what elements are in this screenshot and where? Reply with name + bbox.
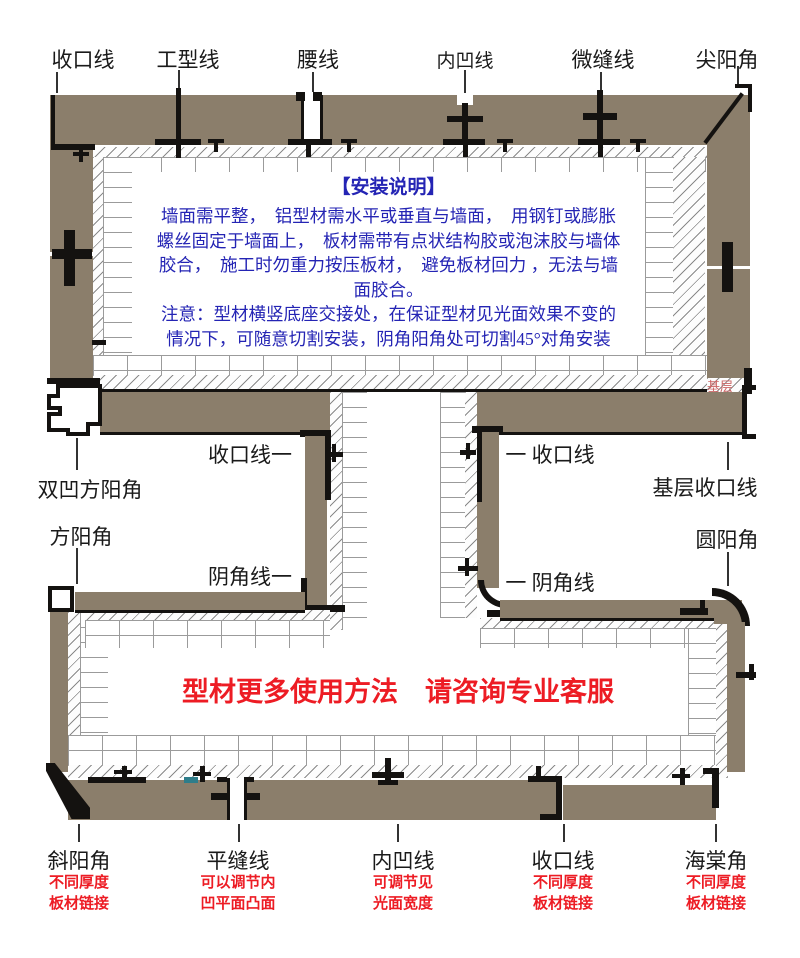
label-shoukouxian-left: 收口线一: [195, 439, 305, 469]
shoukouxian-mid-profile: [325, 430, 331, 500]
install-note-line: 胶合， 施工时勿重力按压板材， 避免板材回力 ，无法与墙: [132, 253, 645, 278]
label-fang-yang-jiao: 方阳角: [26, 521, 136, 551]
wall-brick-bottom: [93, 355, 707, 375]
caption-neiaoxian: 可调节见 光面宽度: [353, 872, 453, 914]
shoukouxian-profile: [51, 144, 95, 150]
left-wall-profile: [52, 249, 92, 259]
wall-hatch-right: [673, 157, 705, 355]
leader-line: [727, 442, 729, 470]
stub-wall-brick-right: [440, 392, 465, 618]
neiaoxian-bottom-profile: [378, 780, 398, 785]
fixing-tick: [636, 139, 640, 152]
label-shoukouxian-bottom: 收口线: [513, 845, 613, 875]
profile-installation-diagram: 收口线 工型线 腰线 内凹线 微缝线 尖阳角: [0, 0, 800, 958]
install-note-line: 面胶合。: [132, 278, 645, 303]
wall-brick-right: [645, 157, 673, 355]
fixing-tick: [536, 766, 541, 778]
leader-line: [312, 72, 314, 92]
install-note: 【安装说明】 墙面需平整， 铝型材需水平或垂直与墙面， 用钢钉或膨胀 螺丝固定于…: [132, 172, 645, 351]
shoukouxian-bottom-profile: [528, 776, 556, 782]
caption-line: 不同厚度: [666, 872, 766, 893]
leader-line: [238, 824, 240, 842]
wall-hatch-bottom: [93, 375, 707, 389]
jiceng-shoukou-profile: [742, 434, 756, 439]
left-arm-panel: [100, 392, 330, 435]
label-yinjiaoxian-left: 阴角线一: [195, 561, 305, 591]
yaoxian-profile: [301, 95, 323, 139]
yaoxian-profile: [296, 92, 305, 101]
fang-yang-jiao-bar: [75, 592, 305, 613]
yuan-yang-jiao-profile: [712, 588, 750, 626]
fang-yang-jiao-profile: [48, 586, 74, 612]
install-note-line: 注意：型材横竖底座交接处，在保证型材见光面效果不变的: [132, 302, 645, 327]
right-wall-panel: [707, 95, 750, 378]
label-yuan-yang-jiao: 圆阳角: [672, 524, 782, 554]
fixing-tick: [92, 340, 106, 345]
bwall-brick-topleft: [85, 620, 330, 648]
label-shuang-ao-fang-yang-jiao: 双凹方阳角: [25, 474, 155, 504]
weifengxian-profile: [583, 113, 617, 120]
install-note-title: 【安装说明】: [132, 172, 645, 199]
caption-haitangjiao: 不同厚度 板材链接: [666, 872, 766, 914]
bwall-brick-bottom: [68, 735, 716, 765]
caption-shoukouxian: 不同厚度 板材链接: [513, 872, 613, 914]
fixing-tick: [347, 139, 351, 152]
fixing-tick: [503, 139, 507, 152]
left-stub-panel: [305, 436, 327, 608]
haitangjiao-profile: [712, 768, 719, 808]
label-shoukouxian-right: 一 收口线: [495, 439, 605, 469]
leader-line: [78, 824, 80, 842]
label-gongxingxian: 工型线: [143, 44, 233, 74]
stub-wall-hatch-left: [330, 392, 342, 630]
fixing-tick: [466, 443, 470, 459]
label-xieyangjiao: 斜阳角: [29, 845, 129, 875]
shoukouxian-bottom-profile: [540, 814, 557, 820]
top-wall-panel: [50, 95, 707, 145]
wall-brick-left: [103, 157, 132, 355]
label-neiaoxian-bottom: 内凹线: [353, 845, 453, 875]
fixing-tick: [306, 145, 311, 157]
bottom-band-left: [68, 780, 558, 820]
fixing-tick: [176, 145, 181, 158]
caption-line: 板材链接: [666, 893, 766, 914]
install-note-line: 螺丝固定于墙面上， 板材需带有点状结构胶或泡沫胶与墙体: [132, 229, 645, 254]
caption-line: 不同厚度: [29, 872, 129, 893]
right-arm-panel: [477, 392, 743, 435]
pingfengxian-profile: [211, 793, 227, 800]
jianyangjiao-profile: [748, 84, 752, 112]
wall-brick-top: [93, 157, 707, 172]
leader-line: [563, 824, 565, 842]
pingfengxian-profile: [217, 777, 227, 782]
fixing-tick: [214, 139, 218, 152]
fixing-tick: [465, 558, 469, 576]
install-note-line: 情况下，可随意切割安装，阴角阳角处可切割45°对角安装: [132, 327, 645, 352]
fixing-tick: [193, 772, 211, 776]
jiceng-shoukou-profile: [742, 385, 756, 390]
right-lower-wall-panel: [727, 622, 745, 772]
wall-hatch-top: [93, 147, 707, 157]
gasket-mark: [184, 777, 198, 783]
caption-xieyangjiao: 不同厚度 板材链接: [29, 872, 129, 914]
neiaoxian-bottom-profile: [372, 772, 404, 778]
shuang-ao-fang-yang-jiao-profile: [46, 384, 102, 436]
pingfengxian-profile: [244, 793, 260, 800]
left-lower-wall-panel: [50, 612, 68, 772]
leader-line: [715, 824, 717, 842]
caption-line: 凹平面凸面: [188, 893, 288, 914]
label-shoukouxian-top: 收口线: [38, 44, 128, 74]
label-jiceng-shoukouxian: 基层收口线: [645, 472, 765, 502]
caption-line: 不同厚度: [513, 872, 613, 893]
label-weifengxian: 微缝线: [558, 44, 648, 74]
jiceng-shoukou-profile: [742, 385, 747, 439]
label-neiaoxian-top: 内凹线: [432, 46, 498, 73]
caption-pingfengxian: 可以调节内 凹平面凸面: [188, 872, 288, 914]
caption-line: 板材链接: [513, 893, 613, 914]
leader-line: [56, 72, 58, 93]
caption-line: 光面宽度: [353, 893, 453, 914]
gongxingxian-profile: [176, 88, 181, 142]
fixing-tick: [700, 600, 705, 615]
fixing-tick: [332, 444, 336, 462]
caption-line: 可以调节内: [188, 872, 288, 893]
bottom-band-right: [563, 785, 716, 820]
caption-line: 板材链接: [29, 893, 129, 914]
leader-line: [397, 824, 399, 842]
right-lower-cap: [749, 664, 754, 680]
label-pingfengxian: 平缝线: [188, 845, 288, 875]
leader-line: [178, 70, 180, 90]
right-wall-profile: [722, 242, 733, 292]
promo-text: 型材更多使用方法 请咨询专业客服: [108, 670, 688, 709]
label-yinjiaoxian-right: 一 阴角线: [495, 567, 605, 597]
leader-line: [76, 548, 78, 584]
shoukouxian-profile: [51, 95, 55, 150]
label-jianyangjiao: 尖阳角: [682, 44, 772, 74]
band-edge-profile: [88, 777, 146, 783]
leader-line: [464, 70, 466, 93]
caption-line: 可调节见: [353, 872, 453, 893]
label-jiceng: 基层: [707, 376, 733, 395]
bwall-brick-right: [688, 628, 716, 735]
jianyangjiao-profile: [735, 84, 752, 88]
neiaoxian-profile: [447, 116, 483, 122]
install-note-line: 墙面需平整， 铝型材需水平或垂直与墙面， 用钢钉或膨胀: [132, 204, 645, 229]
label-yaoxian: 腰线: [283, 44, 353, 74]
pingfengxian-profile: [244, 777, 254, 782]
fixing-tick: [672, 774, 690, 778]
leader-line: [76, 438, 78, 470]
fixing-tick: [73, 152, 89, 156]
haitangjiao-profile: [703, 768, 719, 774]
fixing-tick: [114, 770, 132, 774]
leader-line: [727, 552, 729, 586]
shoukouxian-mid-profile: [477, 432, 482, 502]
label-haitangjiao: 海棠角: [666, 845, 766, 875]
fixing-tick: [598, 145, 603, 157]
stub-wall-brick-left: [342, 392, 367, 630]
fixing-tick: [463, 145, 468, 157]
yaoxian-profile: [313, 92, 322, 101]
